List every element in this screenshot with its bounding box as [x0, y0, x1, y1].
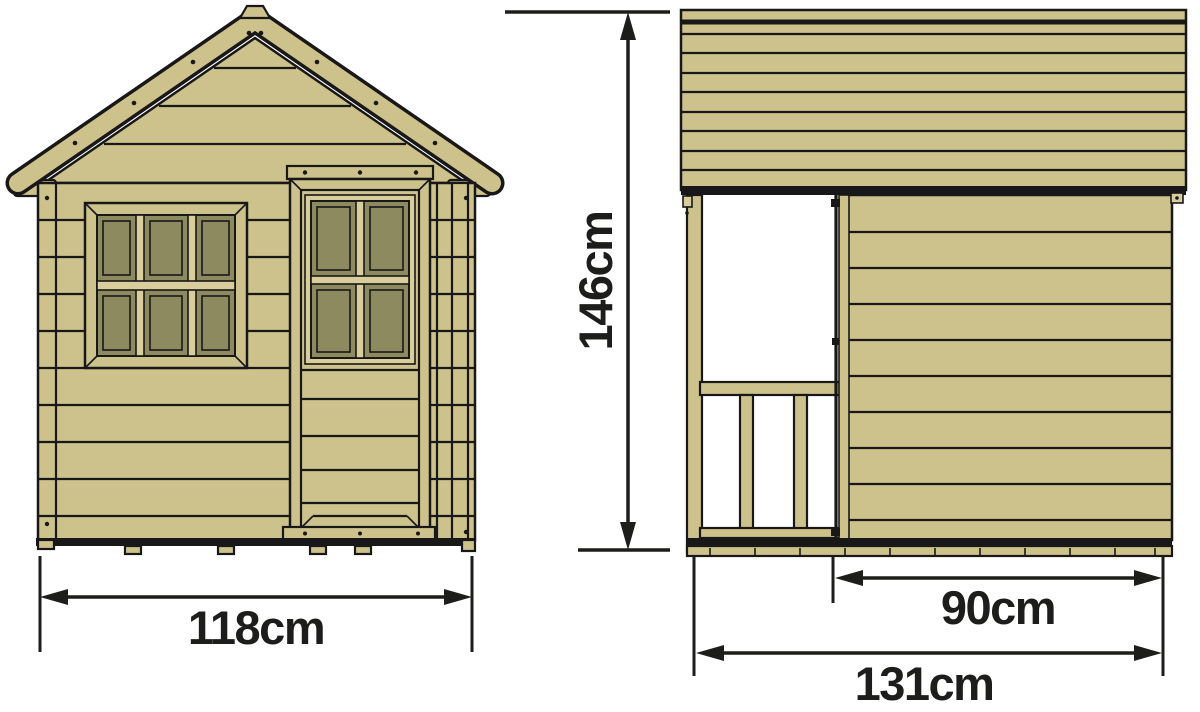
arrow-up-icon: [620, 12, 636, 40]
side-wall: [845, 193, 1183, 540]
front-post-foot-right: [462, 540, 475, 551]
door-header-nail: [414, 170, 418, 174]
front-corner-strip-right: [452, 183, 468, 540]
threshold-nail: [303, 532, 307, 536]
doorway-hinge: [832, 338, 839, 345]
window-muntin-horizontal: [97, 281, 235, 290]
side-roof: [681, 10, 1186, 195]
side-view: [681, 10, 1186, 556]
doorway-edge-board: [839, 195, 849, 540]
porch-baluster: [740, 395, 753, 531]
front-foot: [218, 546, 234, 554]
front-ridge-cap: [240, 6, 270, 18]
front-post-foot-left: [38, 540, 54, 549]
porch-post: [687, 195, 702, 552]
corner-nail: [45, 196, 49, 200]
height-label: 146cm: [569, 212, 622, 351]
arrow-right-icon: [1134, 645, 1162, 661]
side-roof-eave-band: [681, 186, 1186, 195]
corner-nail: [464, 530, 468, 534]
side-wall-panel: [845, 195, 1172, 540]
playhouse-dimension-diagram: 118cm 146cm 90cm 131cm: [0, 0, 1200, 712]
bracket-nail: [1175, 196, 1179, 200]
side-roof-slab: [681, 10, 1186, 190]
front-foot: [125, 546, 141, 554]
door-muntin-horizontal: [311, 276, 409, 284]
porch-post-bracket: [683, 196, 692, 207]
side-porch: [683, 195, 849, 552]
dimension-front-width: 118cm: [40, 556, 472, 654]
front-foot: [355, 546, 371, 554]
doorway-hinge: [831, 528, 840, 536]
arrow-left-icon: [40, 589, 68, 605]
corner-nail: [45, 522, 49, 526]
arrow-left-icon: [835, 570, 863, 586]
bracket-nail: [685, 211, 689, 215]
porch-baluster: [794, 395, 807, 531]
front-width-label: 118cm: [188, 601, 324, 654]
side-partial-width-label: 90cm: [941, 581, 1055, 634]
front-base: [36, 538, 476, 554]
door-header-nail: [303, 170, 307, 174]
porch-rail-bottom: [700, 528, 848, 538]
doorway-hinge: [831, 199, 840, 207]
door-header-nail: [358, 170, 362, 174]
front-base-skid: [36, 538, 476, 546]
threshold-nail: [416, 532, 420, 536]
dimension-height: 146cm: [505, 12, 670, 550]
arrow-right-icon: [1134, 570, 1162, 586]
front-window: [85, 203, 247, 368]
arrow-left-icon: [696, 645, 724, 661]
front-view: [14, 6, 492, 554]
porch-rail-top: [700, 382, 848, 395]
side-deck-board: [687, 546, 1172, 556]
arrow-down-icon: [620, 522, 636, 550]
front-door: [283, 166, 435, 540]
arrow-right-icon: [444, 589, 472, 605]
dimension-side-partial-width: 90cm: [833, 556, 1162, 634]
corner-nail: [464, 196, 468, 200]
side-base: [687, 538, 1172, 556]
threshold-nail: [358, 532, 362, 536]
side-total-width-label: 131cm: [855, 657, 994, 710]
side-base-skid: [687, 538, 1172, 546]
front-foot: [310, 546, 326, 554]
